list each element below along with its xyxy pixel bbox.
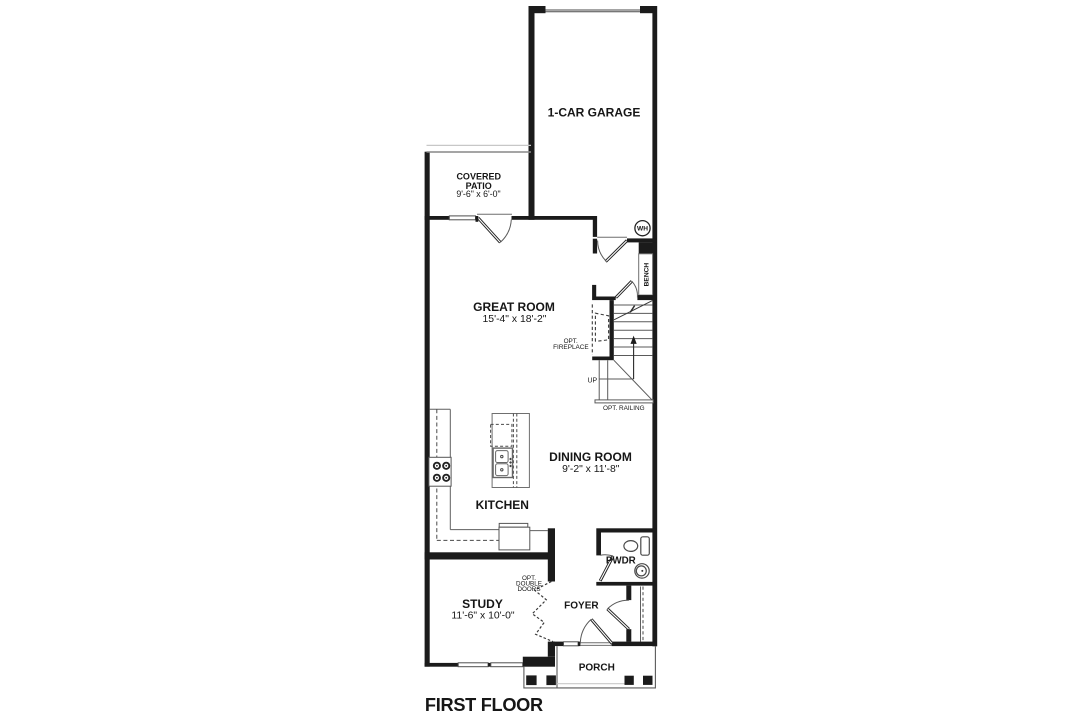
svg-text:OPT. RAILING: OPT. RAILING: [603, 405, 645, 412]
svg-text:PORCH: PORCH: [579, 663, 615, 674]
svg-text:FOYER: FOYER: [564, 601, 599, 612]
svg-text:FIREPLACE: FIREPLACE: [553, 344, 589, 351]
svg-text:KITCHEN: KITCHEN: [476, 498, 529, 512]
svg-text:DOORS: DOORS: [517, 586, 540, 593]
svg-text:GREAT ROOM: GREAT ROOM: [473, 300, 555, 314]
svg-text:WH: WH: [637, 226, 648, 233]
svg-text:PWDR: PWDR: [606, 556, 636, 567]
svg-text:DINING ROOM: DINING ROOM: [549, 450, 632, 464]
svg-text:1-CAR GARAGE: 1-CAR GARAGE: [548, 106, 641, 120]
svg-text:FIRST FLOOR: FIRST FLOOR: [425, 695, 543, 715]
svg-text:STUDY: STUDY: [462, 597, 503, 611]
svg-text:9'-2" x 11'-8": 9'-2" x 11'-8": [562, 464, 620, 475]
svg-text:15'-4" x 18'-2": 15'-4" x 18'-2": [483, 314, 547, 325]
svg-text:UP: UP: [588, 377, 598, 384]
svg-text:11'-6" x 10'-0": 11'-6" x 10'-0": [451, 611, 514, 622]
svg-text:COVERED: COVERED: [456, 171, 501, 181]
svg-text:BENCH: BENCH: [643, 263, 650, 287]
svg-text:9'-6" x 6'-0": 9'-6" x 6'-0": [456, 189, 500, 199]
